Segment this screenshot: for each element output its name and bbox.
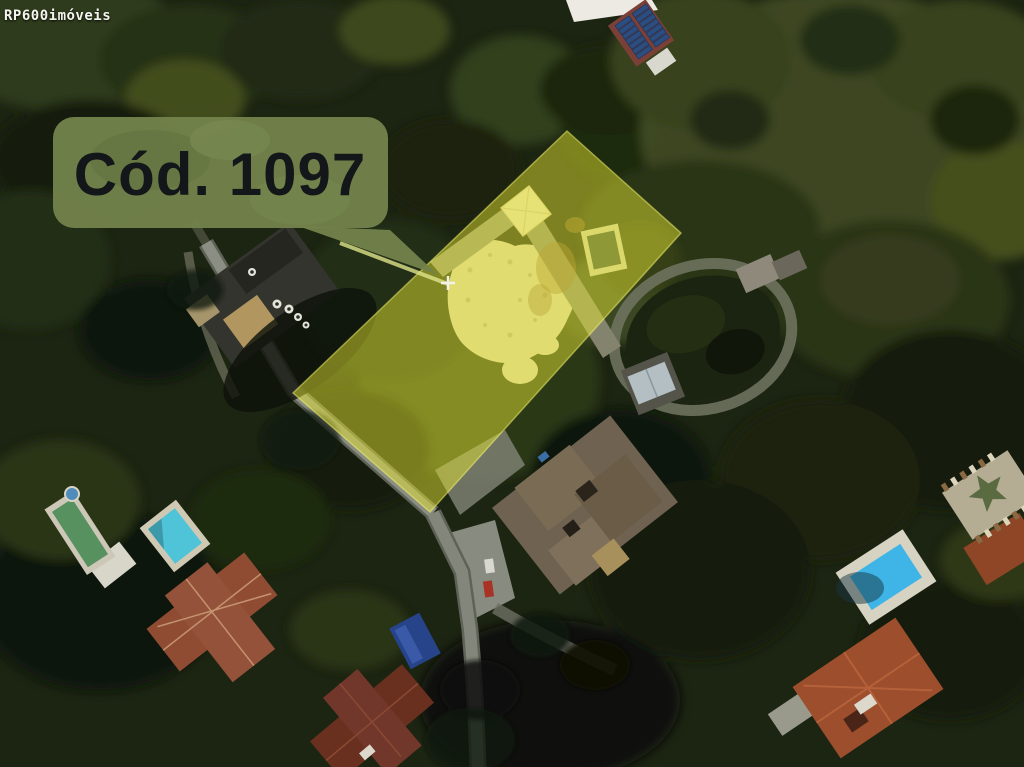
pool-tree-shadow — [836, 572, 884, 604]
watermark: RP600imóveis — [4, 8, 111, 24]
spa-circle — [65, 487, 79, 501]
property-code-text: Cód. 1097 — [74, 141, 366, 208]
aerial-photo: Cód. 1097 — [0, 0, 1024, 767]
real-estate-aerial-photo: Cód. 1097 RP600imóveis — [0, 0, 1024, 767]
